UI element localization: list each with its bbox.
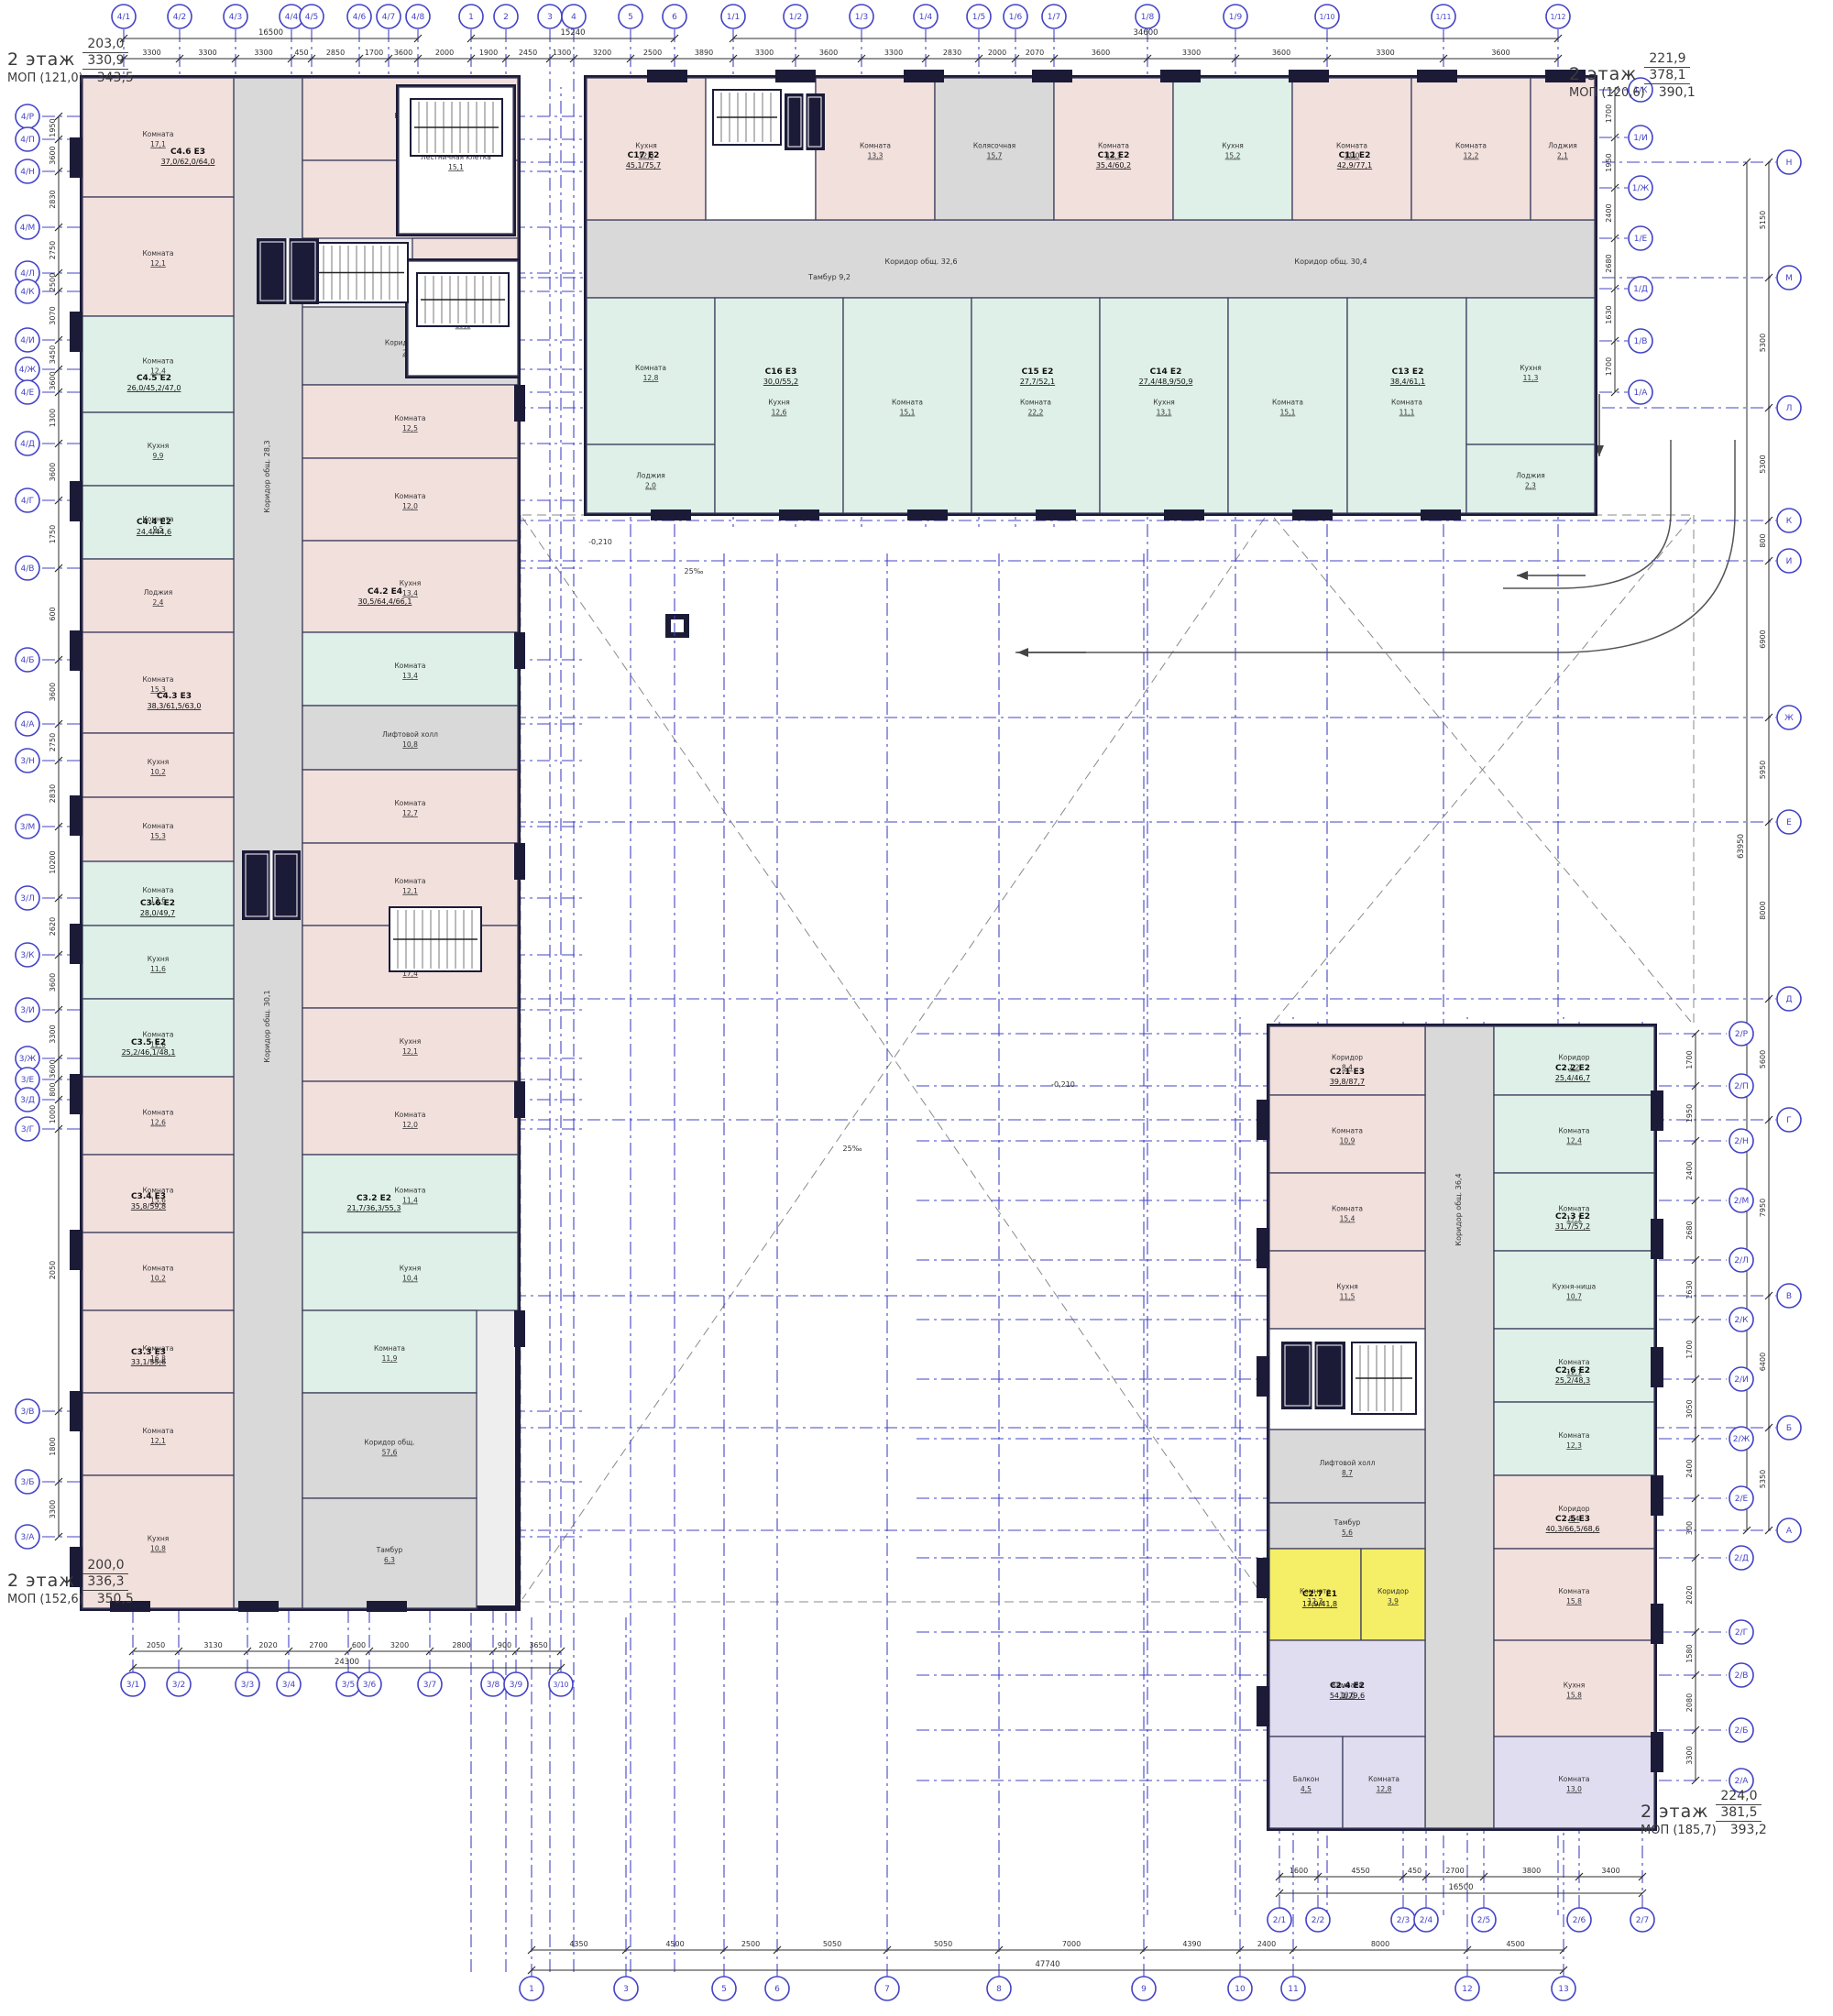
room (234, 78, 302, 1608)
dim-value: 5300 (1759, 334, 1767, 352)
dim-value: 3070 (49, 306, 57, 324)
site-text: Коридор общ. 30,4 (1294, 257, 1367, 266)
arrow-head (1517, 571, 1528, 580)
room-name: Комната (394, 662, 425, 670)
site-text: 25‰ (685, 567, 704, 575)
unit-areas: 27,7/52,1 (1020, 378, 1055, 386)
dim-value: 3600 (49, 463, 57, 481)
balcony-pilaster (1421, 509, 1461, 520)
unit-areas: 31,7/57,2 (1555, 1222, 1590, 1231)
area-value: 381,5 (1716, 1805, 1762, 1821)
axis-bubble-label: 3/2 (172, 1681, 185, 1690)
unit-areas: 25,4/46,7 (1555, 1074, 1590, 1082)
axis-bubble-label: 4/3 (229, 13, 242, 22)
axis-bubble-label: 4/2 (173, 13, 186, 22)
axis-bubble-label: 1/11 (1436, 13, 1452, 21)
axis-bubble-label: 12 (1462, 1985, 1472, 1994)
dim-value: 2080 (1685, 1693, 1694, 1712)
axis-bubble-label: 3/4 (282, 1681, 296, 1690)
dim-value: 5050 (934, 1940, 952, 1948)
mop-label: МОП (120,6) (1569, 86, 1645, 100)
axis-bubble-label: 4/К (20, 288, 35, 297)
balcony-pilaster (647, 70, 687, 82)
room-name: Комната (142, 1427, 173, 1435)
room-name: Комната (1391, 399, 1422, 407)
dim-value: 3130 (203, 1641, 222, 1649)
dim-value: 450 (1408, 1867, 1421, 1875)
axis-bubble-label: 3/5 (342, 1681, 355, 1690)
room-area: 12,0 (402, 502, 418, 510)
room-name: Комната (635, 364, 666, 372)
axis-bubble-label: 1/8 (1141, 13, 1155, 22)
dim-value: 8000 (1759, 901, 1767, 919)
dim-value: 3600 (819, 49, 838, 57)
dim-value: 8000 (1371, 1940, 1389, 1948)
axis-bubble-label: 3/А (21, 1533, 36, 1542)
room-name: Балкон (1293, 1775, 1320, 1783)
room-area: 15,1 (1280, 409, 1296, 417)
room-name: Кухня (148, 442, 170, 450)
unit-code: С3.3 Е3 (131, 1348, 166, 1357)
axis-bubble-label: 2/3 (1397, 1916, 1410, 1925)
dim-value: 2000 (988, 49, 1006, 57)
room-name: Кухня (148, 1535, 170, 1543)
balcony-pilaster (1651, 1604, 1663, 1644)
axis-bubble-label: 1/Ж (1632, 184, 1650, 193)
room-name: Кухня (400, 1037, 422, 1046)
dim-value: 1950 (1605, 153, 1613, 171)
dim-value: 3300 (254, 49, 272, 57)
axis-bubble-label: 1/9 (1229, 13, 1243, 22)
room-area: 12,5 (402, 424, 418, 433)
dim-value: 2500 (643, 49, 662, 57)
dim-value: 3600 (1491, 49, 1509, 57)
dim-value: 2500 (741, 1940, 760, 1948)
room-name: Комната (374, 1344, 405, 1353)
floor-area-annotation-br: 2 этаж 224,0381,5 МОП (185,7)393,2 (1641, 1789, 1772, 1837)
room-name: Комната (1455, 142, 1487, 150)
axis-bubble-label: 1/7 (1048, 13, 1060, 22)
axis-bubble-label: 5 (628, 13, 633, 22)
dim-value: 3050 (1685, 1399, 1694, 1418)
room-name: Кухня (148, 758, 170, 766)
unit-areas: 38,3/61,5/63,0 (148, 702, 202, 710)
area-value: 350,5 (93, 1592, 138, 1606)
axis-bubble-label: 2/А (1735, 1777, 1750, 1786)
axis-bubble-label: 1/И (1633, 134, 1648, 143)
dim-value: 2500 (49, 273, 57, 291)
room-name: Кухня (400, 1265, 422, 1273)
axis-bubble-label: 2/Л (1734, 1256, 1749, 1265)
axis-bubble-label: Н (1786, 159, 1793, 168)
axis-bubble-label: 4/Д (20, 440, 35, 449)
room-area: 11,1 (1399, 409, 1415, 417)
dim-total: 16500 (258, 28, 283, 38)
area-value: 224,0 (1716, 1789, 1762, 1805)
room-name: Кухня (768, 399, 790, 407)
axis-bubble-label: 3/Н (20, 757, 35, 766)
dim-value: 800 (49, 1082, 57, 1096)
axis-bubble-label: 4/Е (21, 389, 35, 398)
unit-code: С4.4 Е2 (137, 518, 171, 527)
axis-bubble-label: 2/Р (1735, 1030, 1749, 1039)
room-name: Коридор (1558, 1054, 1589, 1062)
axis-bubble-label: 4/Н (20, 168, 35, 177)
unit-code: С2.3 Е2 (1555, 1212, 1590, 1222)
room-name: Кухня (635, 142, 657, 150)
axis-bubble-label: 2/М (1734, 1197, 1750, 1206)
dim-value: 1300 (553, 49, 571, 57)
dim-value: 2700 (309, 1641, 327, 1649)
unit-areas: 37,0/62,0/64,0 (161, 158, 215, 166)
room-name: Коридор (1558, 1505, 1589, 1513)
room-name: Коридор общ. (364, 1439, 414, 1447)
dim-value: 2050 (147, 1641, 165, 1649)
room-name: Лоджия (1516, 472, 1545, 480)
room-name: Комната (394, 799, 425, 807)
unit-code: С2.2 Е2 (1555, 1064, 1590, 1073)
unit-code: С17 Е2 (628, 151, 660, 160)
dim-value: 1300 (49, 409, 57, 427)
axis-bubble-label: 2/Ж (1733, 1435, 1751, 1444)
axis-bubble-label: 3/М (20, 823, 36, 832)
balcony-pilaster (651, 509, 691, 520)
axis-bubble-label: И (1786, 557, 1793, 566)
dim-value: 7000 (1062, 1940, 1081, 1948)
room-area: 12,6 (150, 1119, 166, 1127)
room-name: Кухня (1336, 1283, 1358, 1291)
axis-bubble-label: 3/Б (21, 1478, 35, 1487)
dim-value: 2830 (49, 784, 57, 803)
area-value: 203,0 (82, 37, 128, 53)
axis-bubble-label: 1/2 (789, 13, 802, 22)
room-area: 15,7 (987, 152, 1003, 160)
site-text: Коридор общ. 28,3 (263, 440, 271, 512)
room-name: Тамбур (376, 1546, 403, 1554)
unit-areas: 21,7/36,3/55,3 (347, 1204, 401, 1212)
unit-code: С4.2 Е4 (368, 587, 402, 597)
axis-bubble-label: Е (1786, 818, 1792, 827)
unit-areas: 40,3/66,5/68,6 (1546, 1525, 1600, 1533)
balcony-pilaster (1257, 1100, 1269, 1140)
room-name: Лифтовой холл (1320, 1459, 1376, 1467)
dim-value: 6400 (1759, 1353, 1767, 1371)
unit-code: С2.7 Е1 (1302, 1590, 1337, 1599)
building-wings: Комната17,1Комната12,1Комната12,4Кухня9,… (82, 78, 1654, 1828)
unit-areas: 42,9/77,1 (1337, 161, 1372, 170)
room-area: 10,7 (1566, 1293, 1582, 1301)
balcony-pilaster (70, 1074, 82, 1114)
site-text: 25‰ (843, 1145, 862, 1153)
floor-area-annotation-bl: 2 этаж 200,0336,3 МОП (152,6)350,5 (7, 1558, 138, 1606)
balcony-pilaster (70, 630, 82, 671)
room-name: Лоджия (1548, 142, 1577, 150)
unit-code: С11 Е2 (1339, 151, 1371, 160)
axis-bubble-label: 1/4 (919, 13, 933, 22)
room-area: 8,7 (1342, 1469, 1353, 1477)
room-area: 12,3 (1566, 1441, 1582, 1450)
room-name: Кухня (1222, 142, 1244, 150)
balcony-pilaster (1417, 70, 1457, 82)
unit-areas: 17,9/41,8 (1302, 1600, 1337, 1608)
axis-bubble-label: 3/Г (21, 1125, 34, 1134)
unit-code: С4.6 Е3 (170, 148, 205, 157)
room-area: 11,9 (382, 1354, 398, 1363)
dim-value: 4500 (665, 1940, 684, 1948)
dim-value: 600 (352, 1641, 366, 1649)
axis-bubble-label: 3 (623, 1985, 629, 1994)
room-name: Комната (1558, 1127, 1589, 1135)
axis-bubble-label: М (1785, 274, 1793, 283)
room-name: Комната (142, 1265, 173, 1273)
axis-bubble-label: 4/Л (20, 269, 35, 279)
room-area: 12,6 (772, 409, 787, 417)
balcony-pilaster (514, 1081, 525, 1118)
unit-areas: 35,4/60,2 (1096, 161, 1131, 170)
axis-bubble-label: 2/5 (1477, 1916, 1490, 1925)
room-area: 2,3 (1525, 482, 1536, 490)
dim-value: 3300 (884, 49, 903, 57)
unit-code: С2.4 Е2 (1330, 1682, 1365, 1691)
dim-value: 4500 (1506, 1940, 1524, 1948)
balcony-pilaster (70, 481, 82, 521)
dim-value: 3200 (390, 1641, 409, 1649)
floor-label: 2 этаж (7, 1571, 75, 1591)
unit-areas: 33,1/55,6 (131, 1358, 166, 1366)
axis-bubble-label: 3/10 (554, 1681, 569, 1689)
dim-value: 3300 (198, 49, 216, 57)
dim-value: 6900 (1759, 630, 1767, 648)
balcony-pilaster (779, 509, 819, 520)
site-text: -0,210 (588, 538, 612, 546)
balcony-pilaster (70, 1230, 82, 1270)
balcony-pilaster (1292, 509, 1333, 520)
unit-code: С3.4 Е3 (131, 1192, 166, 1201)
axis-bubble-label: 13 (1558, 1985, 1568, 1994)
dim-value: 3300 (49, 1024, 57, 1043)
area-value: 378,1 (1644, 68, 1690, 83)
room-name: Комната (394, 492, 425, 500)
axis-bubble-label: 5 (721, 1985, 727, 1994)
unit-areas: 28,0/49,7 (140, 909, 175, 917)
dim-value: 3600 (49, 371, 57, 389)
dim-value: 3300 (49, 1500, 57, 1518)
room-area: 17,1 (150, 140, 166, 148)
dim-value: 1700 (1605, 104, 1613, 123)
room-name: Комната (1368, 1775, 1399, 1783)
room (1425, 1026, 1494, 1828)
axis-bubble-label: 4/И (20, 336, 35, 345)
dim-total: 24300 (335, 1658, 359, 1667)
room-area: 6,3 (384, 1556, 395, 1564)
dim-value: 2830 (943, 49, 961, 57)
room-area: 13,3 (868, 152, 884, 160)
dim-value: 3300 (755, 49, 774, 57)
room-name: Комната (1558, 1587, 1589, 1595)
room-name: Комната (142, 822, 173, 830)
balcony-pilaster (70, 1391, 82, 1431)
unit-areas: 35,8/59,8 (131, 1202, 166, 1211)
room-area: 13,0 (1566, 1785, 1582, 1793)
dim-value: 4550 (1351, 1867, 1369, 1875)
room-name: Комната (1336, 142, 1367, 150)
room-area: 2,1 (1557, 152, 1568, 160)
room-area: 10,2 (150, 768, 166, 776)
room-area: 15,4 (1340, 1215, 1356, 1223)
dim-value: 5950 (1759, 761, 1767, 779)
room-name: Комната (142, 357, 173, 366)
balcony-pilaster (907, 509, 948, 520)
balcony-pilaster (1651, 1219, 1663, 1259)
axis-bubble-label: 3/Л (20, 894, 35, 904)
dim-value: 2020 (1685, 1585, 1694, 1604)
room-name: Комната (142, 675, 173, 684)
dim-value: 1900 (479, 49, 498, 57)
axis-bubble-label: 1/3 (855, 13, 868, 22)
axis-bubble-label: Л (1786, 404, 1793, 413)
room-name: Кухня (400, 579, 422, 587)
room-area: 12,0 (402, 1121, 418, 1129)
area-value: 390,1 (1654, 85, 1700, 100)
dim-value: 2680 (1685, 1221, 1694, 1239)
axis-bubble-label: 4/6 (353, 13, 367, 22)
room-area: 15,3 (150, 832, 166, 840)
room-name: Коридор (1332, 1054, 1363, 1062)
balcony-pilaster (904, 70, 944, 82)
balcony-pilaster (1651, 1090, 1663, 1131)
axis-bubble-label: 2/П (1734, 1082, 1749, 1091)
axis-bubble-label: 4/П (20, 136, 35, 145)
area-value: 221,9 (1644, 51, 1690, 68)
room (587, 220, 1595, 298)
room-area: 10,4 (402, 1275, 418, 1283)
floor-label: 2 этаж (1569, 64, 1637, 84)
axis-bubble-label: 3 (547, 13, 553, 22)
axis-bubble-label: 4/Б (21, 656, 35, 665)
unit-code: С16 Е3 (765, 367, 797, 377)
room-name: Комната (394, 1187, 425, 1195)
room-area: 15,1 (900, 409, 916, 417)
dim-value: 2620 (49, 917, 57, 936)
dim-value: 5150 (1759, 211, 1767, 229)
room-area: 4,5 (1301, 1785, 1312, 1793)
room-area: 13,4 (402, 589, 418, 597)
axis-bubble-label: 3/3 (241, 1681, 254, 1690)
room-area: 12,2 (1464, 152, 1479, 160)
axis-bubble-label: 3/Ж (19, 1055, 37, 1064)
room-area: 15,1 (448, 163, 464, 171)
site-text: -0,210 (1051, 1080, 1075, 1089)
balcony-pilaster (70, 924, 82, 964)
dim-value: 2450 (519, 49, 537, 57)
balcony-pilaster (1164, 509, 1204, 520)
room-area: 15,2 (1225, 152, 1241, 160)
axis-bubble-label: 4/М (20, 224, 36, 233)
unit-areas: 27,4/48,9/50,9 (1139, 378, 1193, 386)
axis-bubble-label: Г (1786, 1116, 1792, 1125)
dim-value: 2400 (1605, 203, 1613, 222)
dim-value: 3600 (394, 49, 412, 57)
unit-areas: 45,1/75,7 (626, 161, 661, 170)
axis-bubble-label: 9 (1141, 1985, 1147, 1994)
axis-bubble-label: 10 (1235, 1985, 1246, 1994)
dim-value: 1630 (1685, 1280, 1694, 1298)
axis-bubble-label: 1/А (1634, 389, 1649, 398)
unit-code: С2.6 Е2 (1555, 1366, 1590, 1375)
balcony-pilaster (367, 1601, 407, 1612)
axis-bubble-label: 3/8 (487, 1681, 500, 1690)
dim-total: 16500 (1448, 1883, 1473, 1892)
axis-bubble-label: 1/12 (1551, 13, 1566, 21)
axis-bubble-label: 2 (503, 13, 509, 22)
balcony-pilaster (70, 312, 82, 352)
room-name: Кухня (1564, 1682, 1586, 1690)
balcony-pilaster (514, 843, 525, 880)
dim-value: 2400 (1257, 1940, 1276, 1948)
dim-value: 2750 (49, 241, 57, 259)
site-text: Тамбур 9,2 (807, 273, 851, 281)
axis-bubble-label: 4/5 (305, 13, 318, 22)
dim-value: 2680 (1605, 254, 1613, 272)
dim-value: 4350 (569, 1940, 587, 1948)
mop-label: МОП (121,0) (7, 71, 83, 85)
room-area: 10,8 (402, 740, 418, 749)
dim-value: 1000 (49, 1105, 57, 1123)
axis-bubble-label: 1/В (1634, 337, 1648, 346)
room-area: 22,2 (1028, 409, 1044, 417)
axis-bubble-label: 3/7 (423, 1681, 436, 1690)
dim-value: 1700 (1685, 1050, 1694, 1068)
axis-bubble-label: 11 (1288, 1985, 1298, 1994)
dim-value: 2850 (326, 49, 345, 57)
balcony-pilaster (1257, 1686, 1269, 1726)
room-name: Комната (394, 414, 425, 422)
floor-label: 2 этаж (7, 49, 75, 70)
axis-bubble-label: 6 (672, 13, 677, 22)
axis-bubble-label: 3/И (20, 1006, 35, 1015)
dim-value: 2070 (1026, 49, 1044, 57)
dim-value: 450 (294, 49, 308, 57)
axis-bubble-label: 2/Г (1735, 1628, 1748, 1638)
room-area: 57,6 (382, 1449, 398, 1457)
room-name: Комната (1558, 1431, 1589, 1440)
area-value: 200,0 (82, 1558, 128, 1574)
dim-value: 2400 (1685, 1161, 1694, 1179)
room-name: Комната (1558, 1358, 1589, 1366)
room-area: 11,4 (402, 1197, 418, 1205)
unit-areas: 26,0/45,2/47,0 (127, 384, 181, 392)
floor-area-annotation-tr: 2 этаж 221,9378,1 МОП (120,6)390,1 (1569, 51, 1700, 100)
room-name: Комната (1272, 399, 1303, 407)
balcony-pilaster (514, 385, 525, 422)
dim-value: 800 (1759, 533, 1767, 547)
room-name: Коридор (1377, 1587, 1409, 1595)
area-value: 336,3 (82, 1574, 128, 1590)
room-name: Комната (394, 1111, 425, 1119)
dim-value: 1580 (1685, 1644, 1694, 1662)
unit-areas: 25,2/46,1/48,1 (122, 1048, 176, 1057)
balcony-pilaster (1651, 1475, 1663, 1516)
dim-value: 600 (49, 607, 57, 620)
axis-bubble-label: 2/Б (1735, 1726, 1749, 1736)
axis-bubble-label: 3/Е (21, 1076, 35, 1085)
axis-bubble-label: 4/4 (285, 13, 299, 22)
room-area: 15,8 (1566, 1692, 1582, 1700)
dim-value: 1800 (49, 1437, 57, 1455)
room-name: Комната (1332, 1205, 1363, 1213)
room-area: 2,4 (153, 598, 164, 607)
axis-bubble-label: 4/7 (382, 13, 395, 22)
